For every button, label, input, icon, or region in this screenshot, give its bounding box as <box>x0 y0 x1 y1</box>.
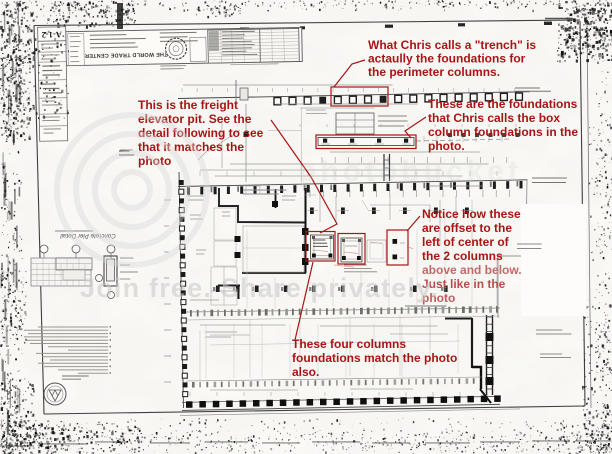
svg-text:column foundations in the: column foundations in the <box>428 125 578 139</box>
svg-text:photo.: photo. <box>428 139 465 153</box>
svg-text:This is the freight: This is the freight <box>138 98 238 112</box>
svg-text:also.: also. <box>292 365 319 379</box>
svg-text:photobucket: photobucket <box>298 155 522 188</box>
svg-text:These are the foundations: These are the foundations <box>428 97 578 111</box>
svg-text:the 2 columns: the 2 columns <box>422 249 503 263</box>
svg-text:left of center of: left of center of <box>422 235 510 249</box>
svg-text:the perimeter columns.: the perimeter columns. <box>368 65 500 79</box>
svg-text:A-1-2: A-1-2 <box>42 30 62 40</box>
svg-text:Notice how these: Notice how these <box>422 207 521 221</box>
svg-text:These four columns: These four columns <box>292 337 406 351</box>
svg-text:actaully the foundations for: actaully the foundations for <box>368 52 526 66</box>
svg-text:foundations match the photo: foundations match the photo <box>292 351 457 365</box>
svg-text:Join free. Share privately.: Join free. Share privately. <box>80 273 439 303</box>
svg-text:are offset to the: are offset to the <box>422 221 512 235</box>
svg-text:What Chris calls a "trench" is: What Chris calls a "trench" is <box>368 38 536 52</box>
svg-text:that Chris calls the box: that Chris calls the box <box>428 111 560 125</box>
